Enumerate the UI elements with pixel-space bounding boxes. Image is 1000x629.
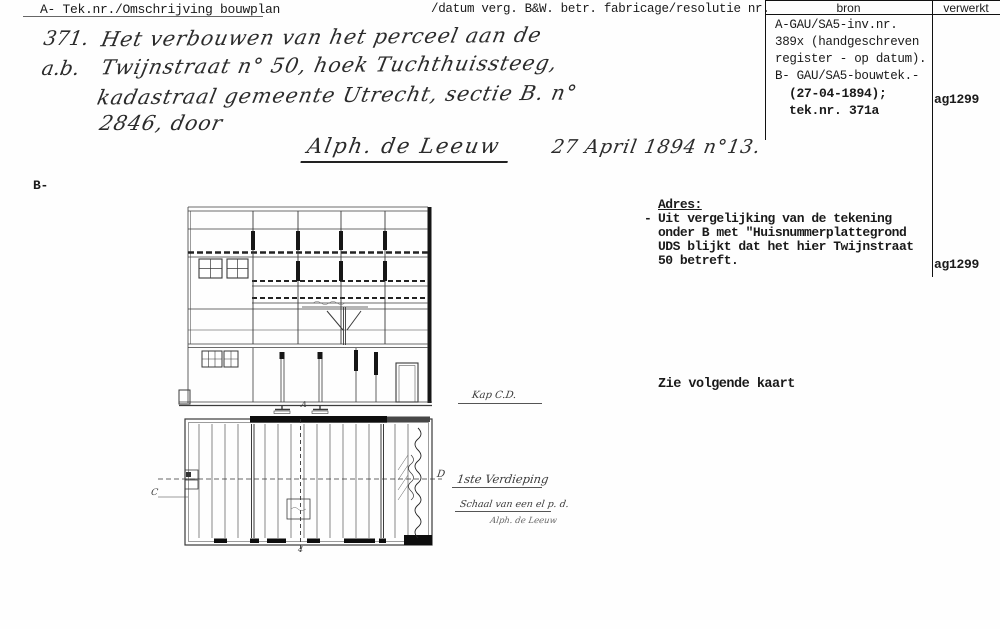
label-scale-underline <box>455 511 551 512</box>
table-rule-middle <box>932 0 933 277</box>
section-marker-b: B- <box>33 178 48 193</box>
adres-line: 50 betreft. <box>658 254 914 268</box>
bron-line: 389x (handgeschreven <box>775 34 926 51</box>
bron-line-teknr: tek.nr. 371a <box>775 102 926 119</box>
column-header-bron: bron <box>765 1 932 15</box>
label-first-floor: 1ste Verdieping <box>456 472 549 486</box>
bron-line: A-GAU/SA5-inv.nr. <box>775 17 926 34</box>
archive-card: A- Tek.nr./Omschrijving bouwplan /datum … <box>0 0 1000 629</box>
label-a: A <box>300 400 307 409</box>
adres-line: onder B met "Huisnummerplattegrond <box>658 226 914 240</box>
adres-line: Uit vergelijking van de tekening <box>658 212 914 226</box>
label-floor-underline <box>452 487 542 488</box>
handwritten-line: kadastraal gemeente Utrecht, sectie B. n… <box>95 80 580 109</box>
label-scale: Schaal van een el p. d. <box>459 499 569 510</box>
verwerkt-code-bottom: ag1299 <box>934 257 979 272</box>
adres-dash: - <box>644 212 651 226</box>
label-c: C <box>150 488 158 498</box>
label-signature: Alph. de Leeuw <box>489 516 557 526</box>
label-kap-underline <box>458 403 542 404</box>
next-card-note: Zie volgende kaart <box>658 377 795 392</box>
bron-line-date: (27-04-1894); <box>775 85 926 102</box>
handwritten-line: Twijnstraat n° 50, hoek Tuchthuissteeg, <box>99 51 560 80</box>
table-rule-left <box>765 0 766 140</box>
handwritten-number: 371. <box>42 26 91 50</box>
handwritten-line: Het verbouwen van het perceel aan de <box>99 23 544 52</box>
bron-line: register - op datum). <box>775 51 926 68</box>
handwritten-date: 27 April 1894 n°13. <box>550 136 763 158</box>
adres-title: Adres: <box>658 198 702 212</box>
bron-line: B- GAU/SA5-bouwtek.- <box>775 68 926 85</box>
bron-box: A-GAU/SA5-inv.nr. 389x (handgeschreven r… <box>775 17 926 119</box>
label-kap-cd: Kap C.D. <box>471 390 517 401</box>
handwritten-name: Alph. de Leeuw <box>300 134 512 163</box>
label-d: D <box>436 469 446 480</box>
header-left-label: A- Tek.nr./Omschrijving bouwplan <box>40 2 280 17</box>
adres-note: Uit vergelijking van de tekening onder B… <box>658 212 914 268</box>
adres-line: UDS blijkt dat het hier Twijnstraat <box>658 240 914 254</box>
handwritten-ab: a.b. <box>40 56 82 80</box>
verwerkt-code-top: ag1299 <box>934 92 979 107</box>
header-left-underline <box>23 16 263 17</box>
column-header-verwerkt: verwerkt <box>932 1 1000 15</box>
handwritten-line: 2846, door <box>97 111 225 135</box>
header-middle-label: /datum verg. B&W. betr. fabricage/resolu… <box>431 2 769 16</box>
